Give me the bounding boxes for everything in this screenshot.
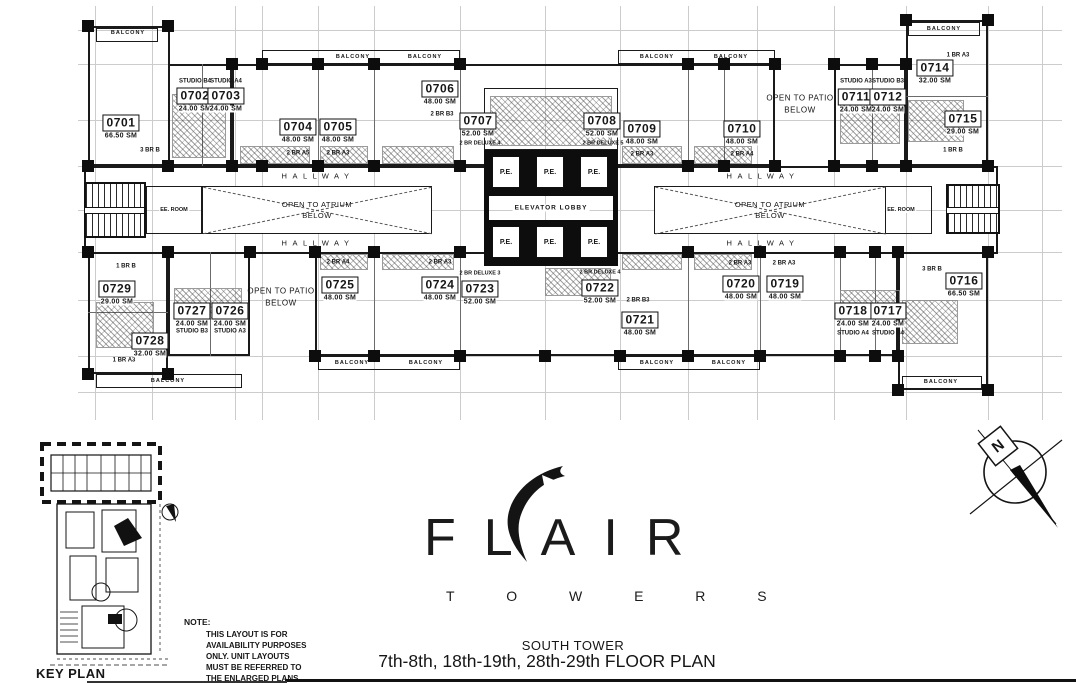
unit-number: 0708 — [583, 113, 620, 130]
column — [312, 160, 324, 172]
column — [982, 14, 994, 26]
unit-separator — [374, 252, 375, 356]
unit-label: 072624.00 SM — [211, 303, 248, 328]
unit-area: 52.00 SM — [586, 131, 618, 138]
fixture-detail — [622, 254, 682, 270]
unit-area: 66.50 SM — [105, 133, 137, 140]
unit-area: 48.00 SM — [725, 294, 757, 301]
unit-area: 48.00 SM — [324, 295, 356, 302]
unit-label: 072832.00 SM — [131, 333, 168, 358]
elevator-lobby-label: ELEVATOR LOBBY — [513, 205, 590, 212]
unit-label: 071432.00 SM — [916, 60, 953, 85]
unit-label: 072252.00 SM — [581, 280, 618, 305]
unit-area: 24.00 SM — [176, 321, 208, 328]
unit-area: 48.00 SM — [424, 295, 456, 302]
balcony-label: BALCONY — [714, 54, 748, 60]
column — [368, 246, 380, 258]
unit-type: 2 BR A3 — [766, 260, 802, 268]
unit-number: 0728 — [131, 333, 168, 350]
column — [892, 246, 904, 258]
unit-separator — [374, 64, 375, 166]
unit-area: 29.00 SM — [947, 129, 979, 136]
unit-label: 071224.00 SM — [869, 89, 906, 114]
unit-label: 070448.00 SM — [279, 119, 316, 144]
open-atrium-label: OPEN TO ATRIUM BELOW — [282, 199, 352, 222]
unit-type: 2 BR DELUXE 4 — [460, 141, 501, 148]
floor-plan-sheet: P.E.P.E.P.E.P.E.P.E.P.E.HALLWAYHALLWAYHA… — [0, 0, 1076, 683]
column — [614, 350, 626, 362]
balcony-label: BALCONY — [927, 26, 961, 32]
column — [892, 350, 904, 362]
unit-label: 070752.00 SM — [459, 113, 496, 138]
unit-type: 2 BR B3 — [620, 297, 656, 305]
stair — [84, 182, 146, 238]
unit-type: 2 BR A3 — [320, 150, 356, 158]
unit-label: 072448.00 SM — [421, 277, 458, 302]
elevator-cab: P.E. — [536, 226, 564, 258]
column — [718, 160, 730, 172]
grid-line — [1042, 6, 1043, 420]
column — [256, 160, 268, 172]
column — [866, 58, 878, 70]
unit-area: 24.00 SM — [872, 107, 904, 114]
column — [82, 20, 94, 32]
unit-type: STUDIO A3 — [212, 328, 248, 336]
column — [162, 160, 174, 172]
column — [368, 350, 380, 362]
column — [454, 350, 466, 362]
fixture-detail — [382, 146, 454, 164]
stair-landing — [947, 207, 998, 214]
unit-number: 0721 — [621, 312, 658, 329]
column — [226, 160, 238, 172]
column — [454, 58, 466, 70]
balcony-label: BALCONY — [335, 360, 369, 366]
unit-type: 2 BR A4 — [320, 259, 356, 267]
elevator-cab: P.E. — [536, 156, 564, 188]
unit-type: 2 BR A3 — [422, 259, 458, 267]
unit-area: 52.00 SM — [584, 298, 616, 305]
unit-type: STUDIO B4 — [870, 330, 906, 338]
unit-type: STUDIO A4 — [208, 78, 244, 86]
unit-label: 070948.00 SM — [623, 121, 660, 146]
unit-number: 0718 — [834, 303, 871, 320]
elevator-cab: P.E. — [492, 156, 520, 188]
unit-type: 2 BR DELUXE 4 — [580, 270, 621, 277]
hallway-label: HALLWAY — [282, 239, 355, 248]
column — [682, 350, 694, 362]
note-line: THIS LAYOUT IS FOR — [206, 629, 288, 641]
unit-separator — [688, 64, 689, 166]
unit-label: 072548.00 SM — [321, 277, 358, 302]
unit-area: 48.00 SM — [769, 294, 801, 301]
unit-area: 66.50 SM — [948, 291, 980, 298]
unit-number: 0722 — [581, 280, 618, 297]
unit-area: 52.00 SM — [462, 131, 494, 138]
key-plan-drawing — [30, 434, 182, 666]
unit-type: 2 BR A3 — [624, 151, 660, 159]
column — [539, 350, 551, 362]
unit-area: 48.00 SM — [424, 99, 456, 106]
scan-edge-line — [285, 679, 1076, 682]
unit-label: 072929.00 SM — [98, 281, 135, 306]
unit-type: STUDIO B3 — [174, 328, 210, 336]
unit-type: STUDIO B3 — [870, 78, 906, 86]
unit-number: 0705 — [319, 119, 356, 136]
fixture-detail — [902, 300, 958, 344]
unit-number: 0729 — [98, 281, 135, 298]
unit-area: 52.00 SM — [464, 299, 496, 306]
floor-plan: P.E.P.E.P.E.P.E.P.E.P.E.HALLWAYHALLWAYHA… — [0, 0, 1076, 430]
ee-room-label: EE. ROOM — [159, 207, 189, 213]
scan-edge-line — [87, 681, 287, 683]
column — [866, 160, 878, 172]
unit-number: 0703 — [207, 88, 244, 105]
column — [226, 58, 238, 70]
column — [982, 384, 994, 396]
unit-area: 24.00 SM — [872, 321, 904, 328]
column — [82, 368, 94, 380]
unit-area: 48.00 SM — [726, 139, 758, 146]
unit-label: 070648.00 SM — [421, 81, 458, 106]
unit-label: 070166.50 SM — [102, 115, 139, 140]
hallway-label: HALLWAY — [727, 239, 800, 248]
unit-separator — [906, 96, 988, 97]
grid-line — [78, 392, 1062, 393]
unit-label: 071724.00 SM — [869, 303, 906, 328]
column — [309, 246, 321, 258]
unit-label: 071048.00 SM — [723, 121, 760, 146]
column — [244, 246, 256, 258]
unit-label: 071948.00 SM — [766, 276, 803, 301]
column — [312, 58, 324, 70]
ee-room-label: EE. ROOM — [886, 207, 916, 213]
balcony-label: BALCONY — [151, 378, 185, 384]
unit-area: 24.00 SM — [210, 106, 242, 113]
unit-label: 072352.00 SM — [461, 281, 498, 306]
column — [900, 160, 912, 172]
unit-label: 072724.00 SM — [173, 303, 210, 328]
note-line: ONLY. UNIT LAYOUTS — [206, 651, 289, 663]
unit-number: 0719 — [766, 276, 803, 293]
elevator-cab: P.E. — [580, 156, 608, 188]
balcony-label: BALCONY — [409, 360, 443, 366]
unit-type: 3 BR B — [132, 147, 168, 155]
open-patio-label: OPEN TO PATIO BELOW — [247, 285, 314, 308]
column — [754, 246, 766, 258]
unit-type: 2 BR B3 — [424, 111, 460, 119]
unit-type: 1 BR B — [108, 263, 144, 271]
column — [682, 58, 694, 70]
unit-number: 0704 — [279, 119, 316, 136]
unit-area: 48.00 SM — [322, 137, 354, 144]
unit-area: 24.00 SM — [179, 106, 211, 113]
column — [162, 246, 174, 258]
unit-number: 0723 — [461, 281, 498, 298]
column — [162, 20, 174, 32]
unit-label: 070852.00 SM — [583, 113, 620, 138]
unit-separator — [760, 252, 761, 356]
unit-type: 2 BR A4 — [724, 151, 760, 159]
unit-type: 2 BR DELUXE 5 — [583, 141, 624, 148]
title-floor-plan: 7th-8th, 18th-19th, 28th-29th FLOOR PLAN — [378, 651, 716, 672]
unit-label: 070324.00 SM — [207, 88, 244, 113]
column — [454, 160, 466, 172]
column — [682, 160, 694, 172]
unit-number: 0717 — [869, 303, 906, 320]
unit-area: 29.00 SM — [101, 299, 133, 306]
unit-area: 48.00 SM — [624, 330, 656, 337]
stair-landing — [85, 207, 144, 214]
unit-block — [906, 20, 988, 166]
hallway-label: HALLWAY — [727, 172, 800, 181]
balcony-label: BALCONY — [640, 54, 674, 60]
unit-label: 071824.00 SM — [834, 303, 871, 328]
unit-label: 072048.00 SM — [722, 276, 759, 301]
unit-number: 0706 — [421, 81, 458, 98]
unit-number: 0712 — [869, 89, 906, 106]
column — [834, 246, 846, 258]
unit-number: 0707 — [459, 113, 496, 130]
balcony-label: BALCONY — [924, 379, 958, 385]
column — [454, 246, 466, 258]
unit-area: 48.00 SM — [282, 137, 314, 144]
unit-number: 0714 — [916, 60, 953, 77]
unit-label: 071529.00 SM — [944, 111, 981, 136]
column — [834, 350, 846, 362]
unit-label: 071666.50 SM — [945, 273, 982, 298]
compass-needle — [1010, 465, 1058, 528]
column — [769, 58, 781, 70]
unit-number: 0709 — [623, 121, 660, 138]
unit-area: 24.00 SM — [840, 107, 872, 114]
note-line: AVAILABILITY PURPOSES — [206, 640, 306, 652]
unit-type: STUDIO A4 — [835, 330, 871, 338]
unit-number: 0720 — [722, 276, 759, 293]
unit-label: 072148.00 SM — [621, 312, 658, 337]
column — [769, 160, 781, 172]
unit-number: 0725 — [321, 277, 358, 294]
column — [754, 350, 766, 362]
balcony-label: BALCONY — [640, 360, 674, 366]
elevator-shaft — [613, 196, 618, 220]
stair — [946, 184, 1000, 234]
key-plan-title: KEY PLAN — [36, 666, 106, 681]
column — [869, 350, 881, 362]
column — [982, 160, 994, 172]
unit-number: 0726 — [211, 303, 248, 320]
open-patio-label: OPEN TO PATIO BELOW — [766, 92, 833, 115]
unit-number: 0727 — [173, 303, 210, 320]
key-plan-shade — [114, 518, 142, 546]
unit-area: 24.00 SM — [214, 321, 246, 328]
unit-type: 1 BR B — [935, 147, 971, 155]
hallway-label: HALLWAY — [282, 172, 355, 181]
balcony-label: BALCONY — [408, 54, 442, 60]
unit-type: 1 BR A3 — [106, 357, 142, 365]
elevator-cab: P.E. — [492, 226, 520, 258]
balcony-label: BALCONY — [336, 54, 370, 60]
key-plan-north-arrow-icon — [162, 504, 178, 522]
compass-icon: N — [968, 424, 1068, 536]
column — [256, 58, 268, 70]
unit-block — [88, 26, 170, 166]
unit-type: 2 BR DELUXE 3 — [460, 271, 501, 278]
open-atrium-label: OPEN TO ATRIUM BELOW — [735, 199, 805, 222]
column — [828, 160, 840, 172]
column — [900, 14, 912, 26]
column — [900, 58, 912, 70]
note-heading: NOTE: — [184, 617, 210, 627]
logo-towers: T O W E R S — [446, 588, 791, 604]
unit-label: 070548.00 SM — [319, 119, 356, 144]
column — [892, 384, 904, 396]
column — [682, 246, 694, 258]
unit-number: 0716 — [945, 273, 982, 290]
column — [982, 246, 994, 258]
unit-separator — [318, 64, 319, 166]
unit-number: 0715 — [944, 111, 981, 128]
unit-type: 2 BR A5 — [280, 150, 316, 158]
column — [309, 350, 321, 362]
unit-area: 48.00 SM — [626, 139, 658, 146]
unit-number: 0701 — [102, 115, 139, 132]
note-line: MUST BE REFERRED TO — [206, 662, 301, 674]
column — [82, 160, 94, 172]
elevator-cab: P.E. — [580, 226, 608, 258]
unit-type: 2 BR A3 — [722, 260, 758, 268]
unit-area: 32.00 SM — [919, 78, 951, 85]
unit-area: 32.00 SM — [134, 351, 166, 358]
column — [82, 246, 94, 258]
elevator-shaft — [484, 196, 489, 220]
unit-number: 0724 — [421, 277, 458, 294]
unit-type: STUDIO A3 — [838, 78, 874, 86]
flair-logo-swoosh-icon — [497, 464, 587, 568]
balcony-label: BALCONY — [712, 360, 746, 366]
unit-number: 0710 — [723, 121, 760, 138]
unit-separator — [688, 252, 689, 356]
column — [368, 160, 380, 172]
column — [869, 246, 881, 258]
column — [828, 58, 840, 70]
unit-area: 24.00 SM — [837, 321, 869, 328]
balcony-label: BALCONY — [111, 30, 145, 36]
